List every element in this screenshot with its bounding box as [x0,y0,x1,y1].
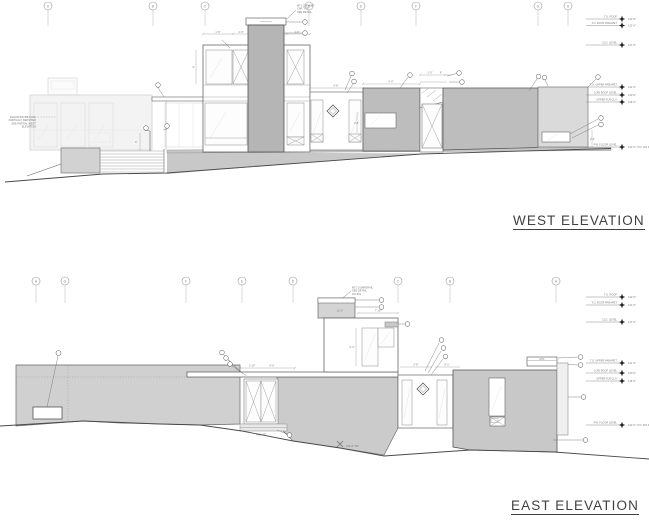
svg-text:127'-6": 127'-6" [628,43,636,47]
svg-text:LOW ROOF LEVEL: LOW ROOF LEVEL [594,91,617,95]
svg-text:3/A-501: 3/A-501 [352,292,362,296]
svg-text:127'-6": 127'-6" [628,320,636,324]
svg-text:6": 6" [440,71,442,75]
svg-text:T.O. ROOF PARAPET: T.O. ROOF PARAPET [591,21,617,25]
svg-text:F: F [415,4,417,8]
west-steps [27,148,164,176]
svg-text:SEE DETAIL: SEE DETAIL [297,10,312,14]
west-ground-wedge [167,152,421,174]
svg-text:FIN. FLOOR LEVEL: FIN. FLOOR LEVEL [594,421,618,425]
svg-text:131'-0": 131'-0" [628,303,636,307]
west-gray-mass-a: 4'-0" [362,73,421,151]
east-left-wall [16,351,240,427]
svg-text:G: G [537,4,540,8]
svg-text:7'-10": 7'-10" [375,309,382,313]
svg-text:F: F [185,279,187,283]
svg-text:120'-0": 120'-0" [628,371,636,375]
svg-text:132'-6": 132'-6" [628,295,636,299]
west-wing-beyond [30,78,152,150]
svg-text:G: G [64,279,67,283]
east-elevation-drawing: H G F E D C B A [0,277,649,459]
svg-text:1'-6": 1'-6" [215,30,220,34]
drawing-sheet: WEST ELEVATION EAST ELEVATION A B C D E … [0,0,649,523]
east-light-panel [557,363,568,435]
svg-text:121'-6": 121'-6" [628,361,636,365]
svg-text:110'-2" TW: 110'-2" TW [346,444,359,448]
svg-text:2'-6": 2'-6" [354,121,359,125]
svg-text:T.O. ROOF PARAPET: T.O. ROOF PARAPET [591,301,617,305]
west-mid-link: 5'-8" 2'-6" [309,71,364,150]
svg-text:6'-0": 6'-0" [269,364,274,368]
svg-text:T.O. ROOF: T.O. ROOF [604,293,617,297]
svg-text:9': 9' [193,65,195,69]
east-level-markers: T.O. ROOF132'-6" T.O. ROOF PARAPET131'-0… [586,293,649,429]
svg-text:UPPER FLR CLG: UPPER FLR CLG [596,377,617,381]
svg-text:8'-1": 8'-1" [444,363,449,367]
svg-text:UPPER FLR CLG: UPPER FLR CLG [596,98,617,102]
svg-text:121'-6": 121'-6" [628,85,636,89]
svg-text:T.O. UPPER PARAPET: T.O. UPPER PARAPET [590,83,617,87]
svg-text:5'-8": 5'-8" [333,84,338,88]
svg-text:110'-0" (T.O. FIN FLR): 110'-0" (T.O. FIN FLR) [628,423,649,427]
svg-text:2'-0": 2'-0" [590,137,595,141]
east-upper-story: 7'-10" 11'-0" 3'-4" [324,309,410,372]
svg-text:MTL: MTL [539,357,545,361]
elevations-svg: A B C D E F G H ELEVATION B [0,0,649,523]
svg-text:ELEVATION: ELEVATION [22,125,36,129]
svg-text:118'-6": 118'-6" [628,379,636,383]
west-gray-mass-b [443,74,541,150]
svg-text:CLG. LEVEL: CLG. LEVEL [602,41,617,45]
svg-text:110'-0" (T.O. FIN FLR): 110'-0" (T.O. FIN FLR) [628,145,649,149]
east-mid-gray-wall [277,377,398,455]
svg-text:118'-6": 118'-6" [628,100,636,104]
east-grid-bubbles: H G F E D C B A [32,277,560,303]
west-level-markers: T.O. ROOF132'-6" T.O. ROOF PARAPET131'-0… [586,15,649,151]
svg-text:4'-0": 4'-0" [388,80,393,84]
svg-text:4'-0": 4'-0" [238,30,243,34]
svg-text:11'-0": 11'-0" [337,309,343,313]
svg-text:1'-10": 1'-10" [249,364,256,368]
svg-text:CLG. LEVEL: CLG. LEVEL [602,318,617,322]
svg-text:FIN. FLOOR LEVEL: FIN. FLOOR LEVEL [594,143,618,147]
svg-text:1'-0": 1'-0" [427,71,432,75]
svg-text:T.O. ROOF: T.O. ROOF [604,15,617,19]
east-center-band: 2'-8" 8'-1" [398,338,460,428]
svg-text:T.O. UPPER PARAPET: T.O. UPPER PARAPET [590,359,617,363]
svg-text:LOW ROOF LEVEL: LOW ROOF LEVEL [594,369,617,373]
west-elevation-drawing: A B C D E F G H ELEVATION B [5,2,649,182]
svg-text:132'-6": 132'-6" [628,17,636,21]
svg-text:2'-8": 2'-8" [413,363,418,367]
svg-text:3'-4": 3'-4" [349,345,354,349]
svg-text:120'-0": 120'-0" [628,93,636,97]
svg-text:131'-0": 131'-0" [628,24,636,28]
